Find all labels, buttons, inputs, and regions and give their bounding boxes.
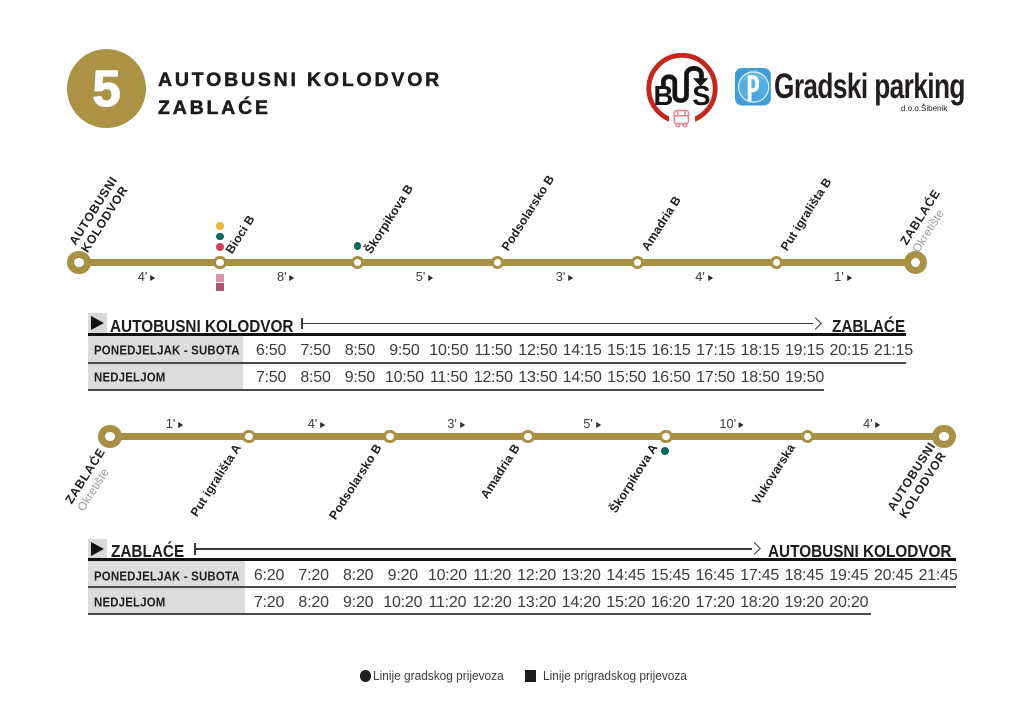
svg-text:S: S [692, 80, 710, 111]
svg-text:SVE: SVE [749, 69, 757, 74]
svg-text:B: B [654, 80, 674, 111]
